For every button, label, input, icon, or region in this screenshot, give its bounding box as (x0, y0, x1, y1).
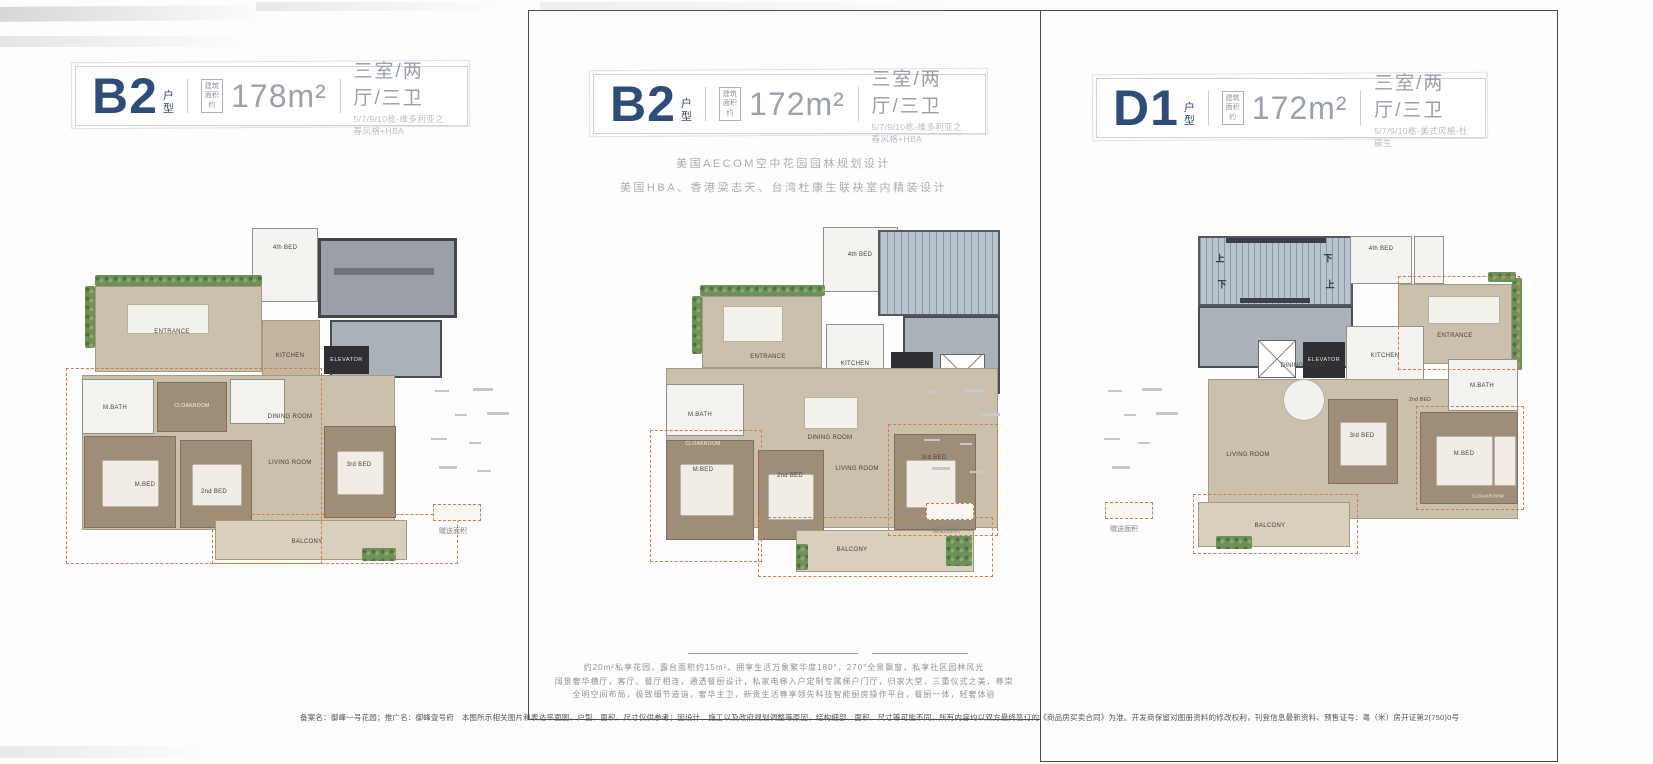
room-label-living: LIVING ROOM (835, 466, 878, 472)
header-divider (340, 79, 341, 113)
room-label-balcony: BALCONY (292, 539, 323, 545)
room-label-mbath: M.BATH (688, 412, 712, 418)
room-label-living: LIVING ROOM (268, 460, 311, 466)
legal-disclaimer: 备案名：御峰一号花园；推广名：御峰壹号府 本图所示相关图片和表达平面图，户型、面… (300, 712, 1550, 723)
dimension-mark (477, 470, 491, 472)
feature-line1: 约20m²私享花园，露台面积约15m²，拥享生活万象繁华度180°，270°全景… (545, 661, 1023, 675)
area-prefix-box: 建筑 面积约 (201, 79, 223, 112)
unit-header-b2-172: B2 户 型 建筑 面积约 172m² 三室/两厅/三卫 5/7/9/10栋-维… (593, 74, 986, 134)
dimension-mark (928, 391, 942, 393)
feature-text-block: 约20m²私享花园，露台面积约15m²，拥享生活万象繁华度180°，270°全景… (545, 661, 1023, 702)
room-label-bed3: 3rd BED (1350, 433, 1375, 439)
gift-legend-swatch (433, 504, 481, 521)
dimension-mark (431, 438, 447, 440)
stair-rail (1226, 238, 1326, 243)
dimension-mark (1104, 438, 1120, 440)
building-style-subtitle: 5/7/9/10栋-维多利亚之春风格+HBA (871, 121, 969, 145)
room-label-bed4: 4th BED (848, 252, 872, 258)
dimension-mark (960, 443, 972, 445)
room-label-bed2: 2nd BED (201, 489, 227, 495)
area-prefix-line2: 面积约 (205, 92, 219, 108)
room-label-balcony: BALCONY (837, 547, 868, 553)
scan-streak (256, 2, 506, 11)
room-label-dining: DINING ROOM (808, 435, 853, 441)
gift-legend-swatch (1105, 502, 1153, 519)
floorplan-brochure-page: B2 户 型 建筑 面积约 178m² 三室/两厅/三卫 5/7/9/10栋-维… (0, 0, 1653, 764)
room-label-cloakroom: CLOAKROOM (1472, 494, 1504, 499)
area-prefix-line1: 建筑 (205, 83, 219, 90)
dimension-mark (439, 466, 457, 469)
unit-suffix-bottom: 型 (1184, 115, 1195, 128)
area-prefix-line2: 面积约 (723, 100, 737, 116)
room-label-cloakroom: CLOAKROOM (174, 403, 209, 409)
feature-divider (872, 653, 968, 654)
stairs-up-label: 上 (1325, 278, 1334, 291)
dimension-mark (1124, 414, 1136, 416)
dining-table-furniture (723, 306, 783, 342)
unit-suffix: 户 型 (163, 90, 174, 116)
dimension-mark (924, 439, 940, 441)
unit-suffix: 户 型 (681, 98, 692, 124)
room-config-wrap: 三室/两厅/三卫 5/7/9/10栋-美式风格-杜康生 (1374, 68, 1469, 149)
design-note-line2: 美国HBA、香港梁志天、台湾杜康生联袂室内精装设计 (528, 176, 1039, 200)
dimension-mark (473, 388, 493, 391)
roof-block (318, 238, 457, 318)
unit-header-d1-172: D1 户 型 建筑 面积约 172m² 三室/两厅/三卫 5/7/9/10栋-美… (1096, 78, 1486, 138)
area-prefix-line1: 建筑 (723, 91, 737, 98)
room-label-entrance: ENTRANCE (750, 354, 785, 360)
area-legend: 赠送面积 (1100, 382, 1190, 547)
scan-streak (0, 746, 210, 758)
gift-legend-label: 赠送面积 (439, 526, 467, 536)
elevator-cab: ELEVATOR (1303, 342, 1345, 378)
dimension-mark (946, 415, 958, 417)
room-label-dining: DINING ROOM (1281, 363, 1326, 369)
elevator-cab: ELEVATOR (324, 346, 369, 374)
unit-suffix: 户 型 (1184, 102, 1195, 128)
area-legend: 赠送面积 (425, 382, 520, 544)
dimension-mark (1108, 390, 1122, 392)
dining-table-furniture (804, 397, 858, 429)
design-note-line1: 美国AECOM空中花园园林规划设计 (528, 152, 1039, 176)
scan-streak (0, 36, 248, 47)
room-label-mbed: M.BED (135, 482, 156, 488)
building-style-subtitle: 5/7/9/10栋-维多利亚之春风格+HBA (353, 113, 451, 137)
dimension-mark (487, 412, 509, 415)
room-config: 三室/两厅/三卫 (353, 56, 451, 110)
dimension-mark (435, 390, 449, 392)
dimension-mark (932, 467, 950, 470)
room-label-dining: DINING ROOM (268, 414, 313, 420)
room-label-bed3: 3rd BED (347, 462, 372, 468)
design-notes: 美国AECOM空中花园园林规划设计 美国HBA、香港梁志天、台湾杜康生联袂室内精… (528, 152, 1039, 200)
room-label-kitchen: KITCHEN (1371, 353, 1399, 359)
room-label-living: LIVING ROOM (1226, 452, 1269, 458)
unit-suffix-bottom: 型 (163, 103, 174, 116)
room-config: 三室/两厅/三卫 (871, 64, 969, 118)
header-divider (187, 79, 188, 113)
room-label-mbed: M.BED (1454, 451, 1475, 457)
stairs-up-label: 上 (1215, 252, 1224, 265)
dimension-mark (469, 442, 481, 444)
garden-plants-strip (85, 286, 95, 348)
room-label-bed2: 2nd BED (1409, 397, 1431, 403)
unit-code: B2 (92, 71, 158, 121)
area-prefix-box: 建筑 面积约 (719, 87, 741, 120)
dimension-mark (964, 389, 984, 392)
unit-code: D1 (1113, 83, 1179, 133)
area-prefix-line2: 面积约 (1226, 104, 1240, 120)
building-style-subtitle: 5/7/9/10栋-美式风格-杜康生 (1374, 125, 1469, 149)
garden-plants-strip (692, 296, 702, 354)
feature-line3: 全明空间布局，极致细节造诣，奢华主卫，新贵生活尊享领先科技智能厨房操作平台，餐厨… (545, 688, 1023, 702)
dimension-mark (1156, 412, 1178, 415)
area-prefix-line1: 建筑 (1226, 95, 1240, 102)
header-divider (705, 87, 706, 121)
elevator-shaft (1258, 340, 1296, 378)
garden-plants-strip (95, 275, 262, 286)
stair-rail (1240, 298, 1310, 303)
room-label-mbath: M.BATH (103, 405, 127, 411)
garden-plants-strip (700, 285, 825, 296)
bed-furniture (337, 451, 384, 495)
scan-streak (0, 5, 265, 22)
room-config-wrap: 三室/两厅/三卫 5/7/9/10栋-维多利亚之春风格+HBA (353, 56, 451, 137)
unit-suffix-bottom: 型 (681, 111, 692, 124)
unit-header-b2-178: B2 户 型 建筑 面积约 178m² 三室/两厅/三卫 5/7/9/10栋-维… (75, 66, 468, 126)
header-divider (858, 87, 859, 121)
room-label-bed3: 3rd BED (922, 455, 947, 461)
header-divider (1360, 91, 1361, 125)
room-label-mbed: M.BED (693, 467, 714, 473)
room-label-kitchen: KITCHEN (276, 353, 304, 359)
area-value: 178m² (231, 78, 327, 115)
gift-area-outline (1398, 276, 1520, 370)
dimension-mark (970, 471, 984, 473)
room-label-entrance: ENTRANCE (154, 329, 189, 335)
room-label-bed4: 4th BED (1369, 246, 1393, 252)
gift-legend-swatch (926, 503, 974, 520)
room-label-entrance: ENTRANCE (1437, 333, 1472, 339)
gift-legend-label: 赠送面积 (932, 525, 960, 535)
dimension-mark (978, 413, 1000, 416)
room-label-bed2: 2nd BED (777, 473, 803, 479)
area-prefix-box: 建筑 面积约 (1222, 91, 1244, 124)
master-bath-room (666, 384, 744, 436)
gift-area-outline (1416, 406, 1524, 510)
header-divider (1208, 91, 1209, 125)
stairs-down-label: 下 (1323, 252, 1332, 265)
scan-streak (540, 2, 960, 10)
room-label-balcony: BALCONY (1255, 523, 1286, 529)
unit-suffix-top: 户 (681, 98, 692, 111)
elevator-label: ELEVATOR (330, 357, 362, 363)
dimension-mark (1138, 442, 1150, 444)
stairs-down-label: 下 (1217, 278, 1226, 291)
stairwell-block (1198, 236, 1353, 306)
room-label-kitchen: KITCHEN (841, 361, 869, 367)
gift-area-outline (212, 514, 458, 564)
floorplan-b2-178: ELEVATOR 4th BED ENTRANCE KITCHEN M.BATH… (62, 196, 462, 571)
room-label-mbath: M.BATH (1470, 383, 1494, 389)
area-value: 172m² (1252, 90, 1348, 127)
unit-suffix-top: 户 (1184, 102, 1195, 115)
area-legend: 赠送面积 (920, 385, 1010, 545)
room-label-bed4: 4th BED (273, 245, 297, 251)
room-config: 三室/两厅/三卫 (1374, 68, 1469, 122)
bed-furniture (768, 474, 814, 520)
dimension-mark (1142, 388, 1162, 391)
unit-code: B2 (610, 79, 676, 129)
dimension-mark (1112, 466, 1130, 469)
room-label-cloakroom: CLOAKROOM (685, 441, 720, 447)
feature-line2: 阔景奢华横厅，客厅、餐厅相连，通透餐厨设计，私家电梯入户定制专属梯户门厅，归家大… (545, 675, 1023, 689)
unit-suffix-top: 户 (163, 90, 174, 103)
area-value: 172m² (749, 86, 845, 123)
dimension-mark (455, 414, 467, 416)
round-dining-table-furniture (1283, 379, 1325, 421)
room-config-wrap: 三室/两厅/三卫 5/7/9/10栋-维多利亚之春风格+HBA (871, 64, 969, 145)
gift-area-outline (650, 430, 762, 562)
feature-divider (688, 653, 858, 654)
bed-furniture (1340, 422, 1387, 466)
stairwell-block (878, 230, 1000, 316)
gift-legend-label: 赠送面积 (1110, 524, 1138, 534)
roof-stair-rail (334, 268, 434, 275)
